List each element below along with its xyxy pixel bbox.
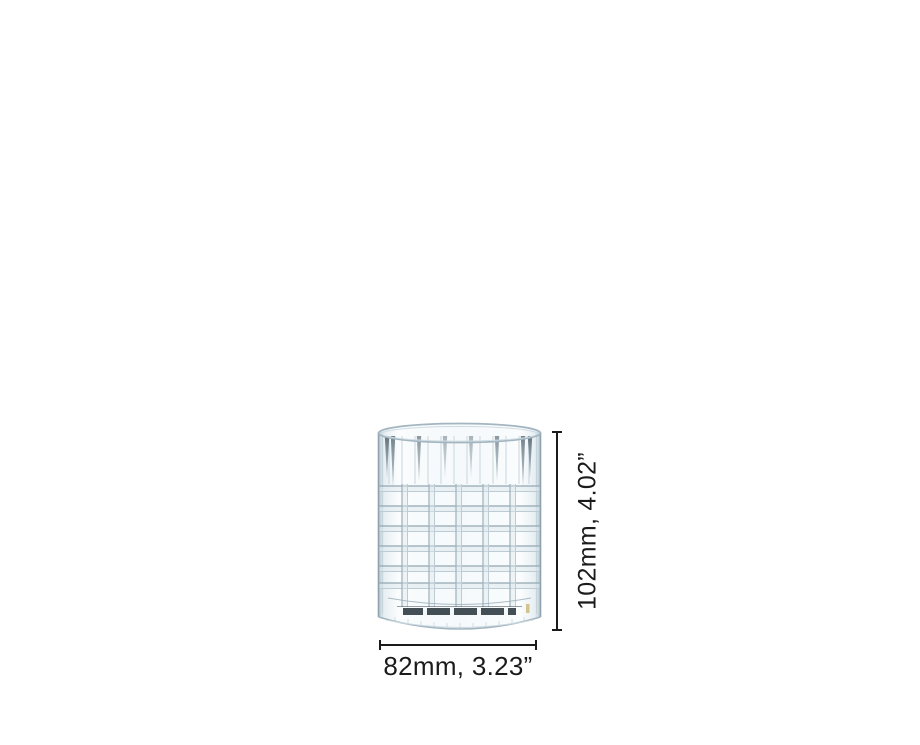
whiskey-tumbler-illustration (377, 422, 542, 640)
product-image-canvas: 102mm, 4.02” 82mm, 3.23” (0, 0, 920, 745)
width-dimension-label: 82mm, 3.23” (379, 653, 537, 679)
height-dimension-line (556, 431, 558, 631)
width-dimension-line (379, 644, 537, 646)
height-dimension-label: 102mm, 4.02” (576, 452, 601, 610)
